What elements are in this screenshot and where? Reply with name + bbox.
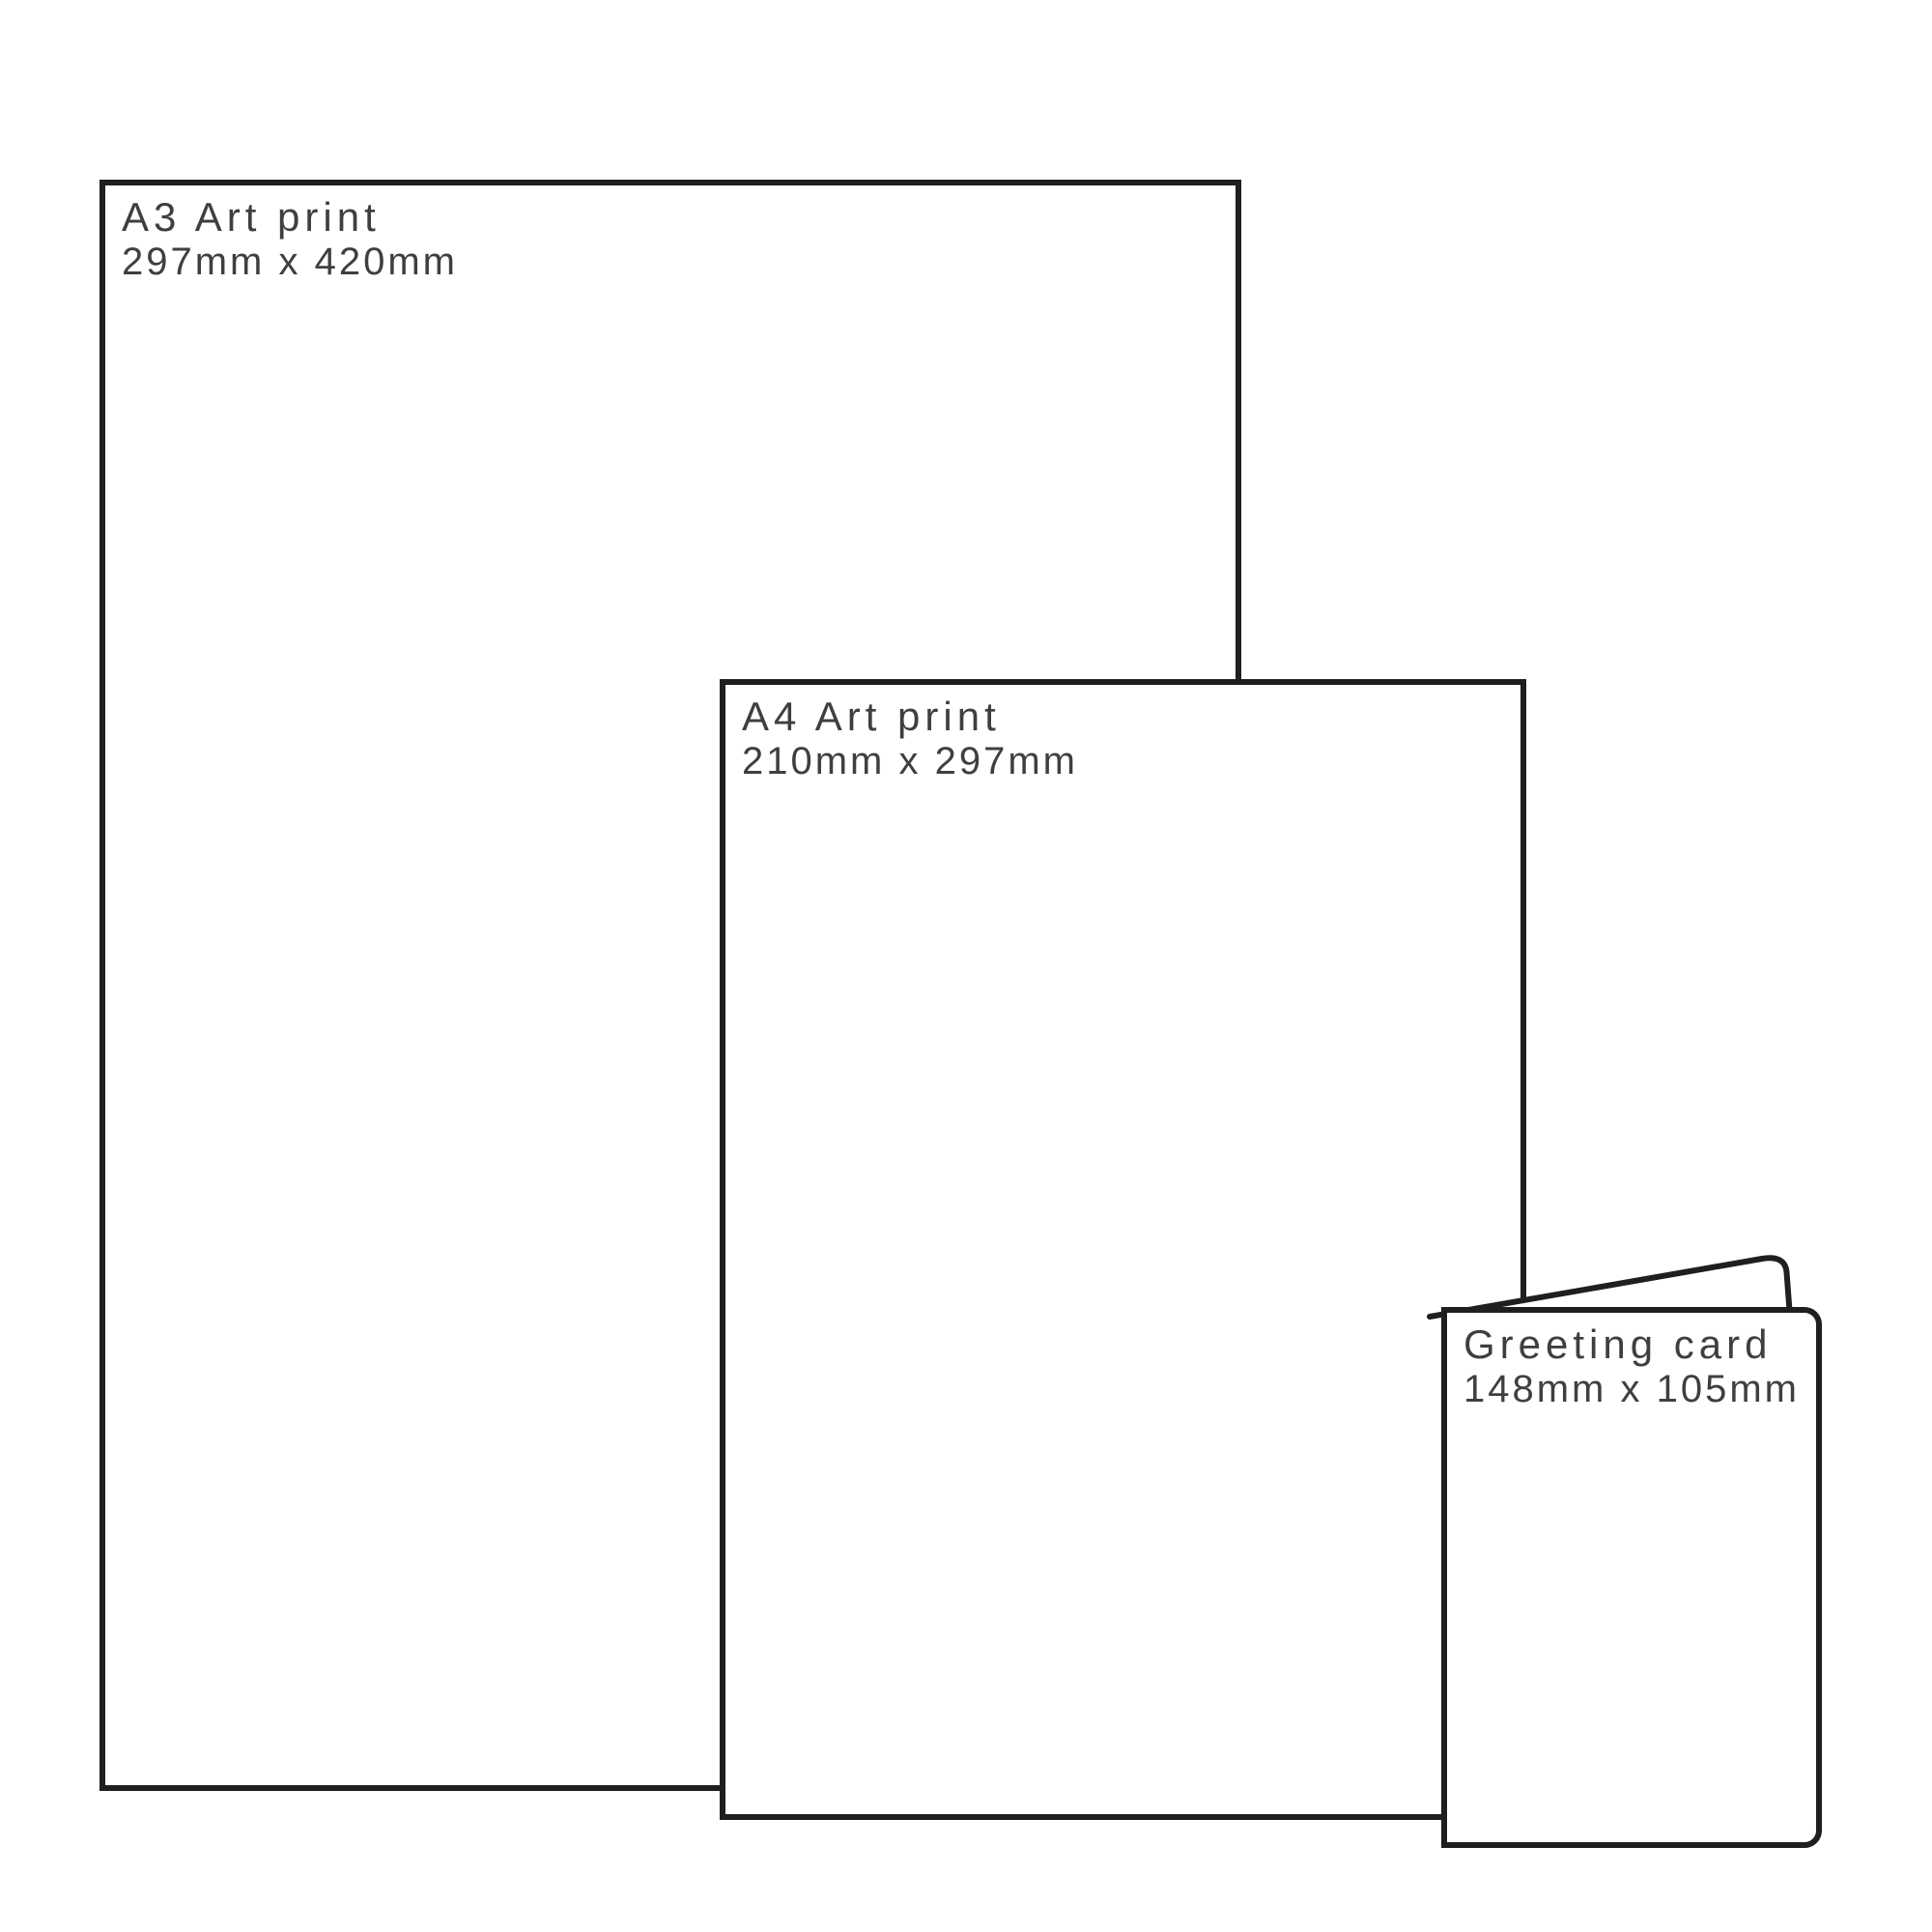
a3-print-dimensions: 297mm x 420mm [122, 240, 1220, 284]
a4-print-dimensions: 210mm x 297mm [742, 739, 1505, 783]
size-comparison-diagram: A3 Art print 297mm x 420mm A4 Art print … [0, 0, 1932, 1932]
a3-print-title: A3 Art print [122, 195, 1220, 240]
greeting-card-title: Greeting card [1463, 1322, 1801, 1367]
a4-print-label: A4 Art print 210mm x 297mm [725, 685, 1520, 783]
greeting-card-label: Greeting card 148mm x 105mm [1447, 1313, 1816, 1411]
greeting-card-rectangle: Greeting card 148mm x 105mm [1441, 1307, 1822, 1848]
greeting-card-dimensions: 148mm x 105mm [1463, 1367, 1801, 1411]
a4-print-title: A4 Art print [742, 695, 1505, 739]
a3-print-label: A3 Art print 297mm x 420mm [105, 185, 1236, 284]
a4-print-rectangle: A4 Art print 210mm x 297mm [720, 679, 1526, 1820]
